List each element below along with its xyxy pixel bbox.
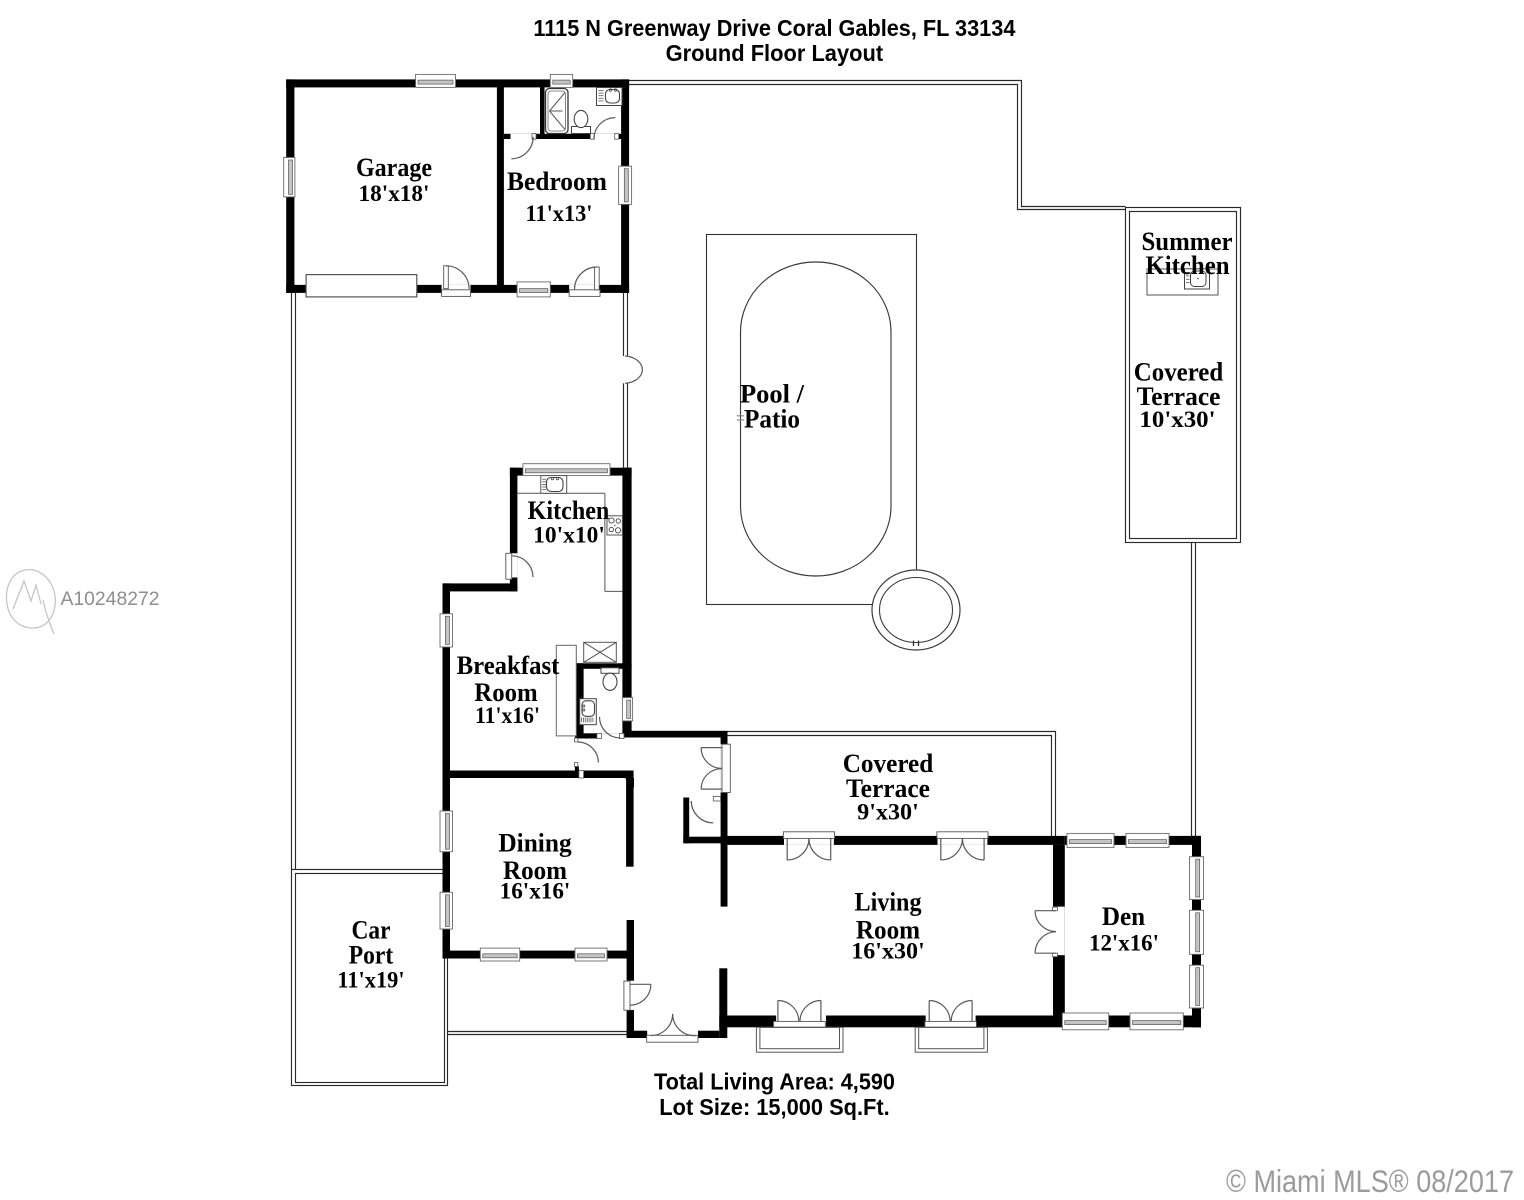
svg-text:Breakfast: Breakfast [457,651,560,680]
svg-text:10'x30': 10'x30' [1139,407,1215,432]
svg-text:10'x10': 10'x10' [533,523,605,548]
svg-text:Lot Size: 15,000 Sq.Ft.: Lot Size: 15,000 Sq.Ft. [659,1094,889,1120]
svg-text:11'x13': 11'x13' [526,201,593,226]
svg-text:Kitchen: Kitchen [1146,251,1231,280]
svg-text:16'x30': 16'x30' [851,939,925,964]
svg-text:A10248272: A10248272 [61,589,160,610]
svg-text:18'x18': 18'x18' [359,181,430,206]
svg-text:9'x30': 9'x30' [857,800,919,825]
svg-text:Dining: Dining [498,829,571,858]
svg-text:11'x16': 11'x16' [475,703,540,728]
svg-text:16'x16': 16'x16' [500,879,571,904]
svg-text:Bedroom: Bedroom [507,167,607,196]
svg-text:© Miami MLS® 08/2017: © Miami MLS® 08/2017 [1226,1163,1514,1199]
svg-text:Den: Den [1102,902,1146,931]
svg-text:Patio: Patio [744,405,800,434]
svg-text:1115 N Greenway Drive Coral Ga: 1115 N Greenway Drive Coral Gables, FL 3… [533,15,1015,41]
svg-text:Living: Living [855,888,922,917]
svg-text:Port: Port [349,941,394,970]
svg-text:Kitchen: Kitchen [528,496,610,525]
svg-text:Ground Floor Layout: Ground Floor Layout [666,40,884,66]
svg-text:Garage: Garage [356,153,432,182]
svg-text:Total Living Area: 4,590: Total Living Area: 4,590 [654,1068,895,1094]
svg-text:11'x19': 11'x19' [337,968,404,993]
svg-text:12'x16': 12'x16' [1089,931,1159,956]
